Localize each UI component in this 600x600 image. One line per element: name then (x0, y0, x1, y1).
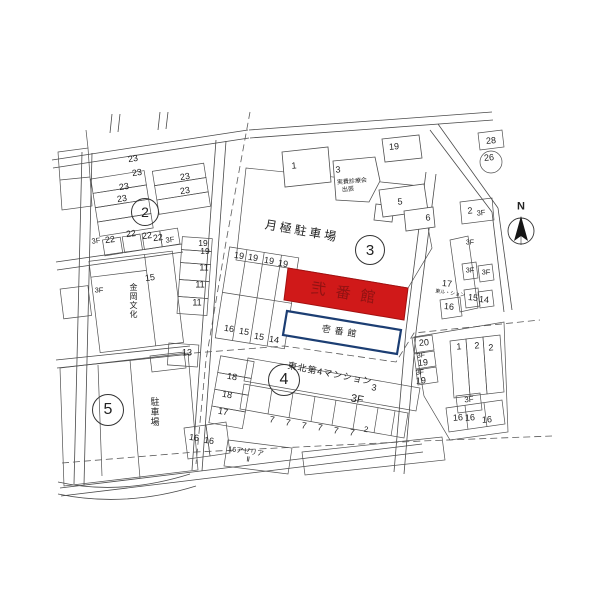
lot-label: 16 (465, 413, 476, 423)
lot-label: 7 (269, 415, 276, 425)
lot-label: 3F (95, 286, 104, 294)
lot-label: 2 (488, 343, 494, 352)
small-parking-label: 駐車場 (150, 397, 159, 427)
lot-label: 7 (317, 423, 324, 433)
lot-label: 22 (141, 231, 152, 241)
lot-label: 3F (165, 236, 175, 245)
lot-label: 16 (453, 413, 464, 423)
residential-map: 23232323232323F222222223F15金岡文化3F13実費診療会… (0, 0, 600, 600)
parking-lot-label: 月極駐車場 (264, 219, 340, 244)
lot-label: 11 (195, 281, 204, 290)
lot-label: 1 (456, 342, 462, 351)
lot-label: 6 (425, 213, 431, 222)
lot-label: 7 (301, 421, 308, 431)
lot-label: 2 (467, 206, 473, 215)
lot-label: 1 (291, 161, 297, 170)
lot-label: 13 (182, 349, 192, 358)
labels-layer: 23232323232323F222222223F15金岡文化3F13実費診療会… (0, 0, 600, 600)
tohoku-mansion-label: 東北第4マンション (287, 361, 373, 386)
lot-label: 20 (419, 338, 430, 348)
lot-label: 3 (335, 165, 341, 174)
lot-label: 23 (179, 172, 190, 182)
lot-label: 5 (397, 197, 403, 206)
lot-label: 23 (127, 154, 138, 164)
lot-label: 17 (442, 279, 453, 289)
lot-label: Ⅱ (246, 456, 250, 463)
building-name-small: 東ル・ション (435, 289, 465, 298)
lot-label: 19 (263, 256, 274, 266)
small-building-label: 実費診療会 (337, 178, 367, 187)
lot-label: 19 (416, 376, 427, 386)
lot-label: 14 (479, 295, 490, 305)
lot-label: 16 (223, 324, 234, 334)
lot-label: 28 (486, 136, 497, 146)
lot-label: 18 (226, 372, 237, 383)
lot-label: 17 (217, 407, 228, 418)
lot-label: 19 (233, 251, 244, 261)
lot-label: 15 (468, 293, 479, 303)
ichi-bankan-label: 壱番館 (321, 325, 361, 340)
lot-label: 18 (221, 390, 232, 401)
lot-label: 3F (482, 268, 491, 276)
lot-label: 3F (466, 266, 475, 274)
lot-label: 7 (333, 426, 340, 436)
lot-label: 15 (238, 327, 249, 337)
lot-label: 11 (199, 264, 208, 273)
lot-label: 23 (116, 194, 127, 204)
ni-bankan-label: 弐番館 (310, 281, 386, 308)
lot-label: 16 (444, 302, 455, 312)
lot-label: 22 (125, 229, 136, 239)
block-5-marker: 5 (92, 394, 124, 426)
lot-label: 16 (482, 415, 493, 425)
lot-label: 19 (200, 247, 209, 256)
lot-label: 22 (104, 235, 115, 245)
lot-label: 3F (350, 393, 365, 406)
lot-label: 23 (179, 186, 190, 196)
lot-label: 16 (203, 436, 214, 446)
lot-label: 2 (363, 426, 369, 435)
lot-label: 3F (91, 237, 101, 246)
lot-label: 26 (484, 153, 495, 163)
lot-label: 19 (389, 142, 400, 152)
lot-label: 3F (476, 209, 485, 217)
lot-label: 3F (464, 396, 474, 405)
lot-label: 22 (152, 233, 163, 243)
lot-label: 16 (188, 433, 199, 443)
lot-label: 7 (285, 418, 292, 428)
lot-label: 7 (349, 428, 356, 438)
block-3-marker: 3 (355, 235, 385, 265)
lot-label: 3 (371, 383, 378, 393)
lot-label: 15 (253, 332, 264, 342)
compass-n-label: N (517, 202, 525, 213)
lot-label: 19 (247, 253, 258, 263)
lot-label: 3F (466, 240, 474, 247)
lot-label: 出張 (342, 186, 354, 193)
kanaoka-bunka-label: 金岡文化 (129, 283, 137, 319)
lot-label: 11 (192, 299, 201, 308)
lot-label: 23 (118, 182, 129, 192)
lot-label: 14 (268, 335, 279, 345)
lot-label: 2 (474, 341, 480, 350)
lot-label: 23 (131, 168, 142, 178)
lot-label: 19 (277, 259, 288, 269)
lot-label: 19 (418, 358, 429, 368)
lot-label: 15 (144, 273, 155, 283)
block-2-marker: 2 (131, 198, 159, 226)
